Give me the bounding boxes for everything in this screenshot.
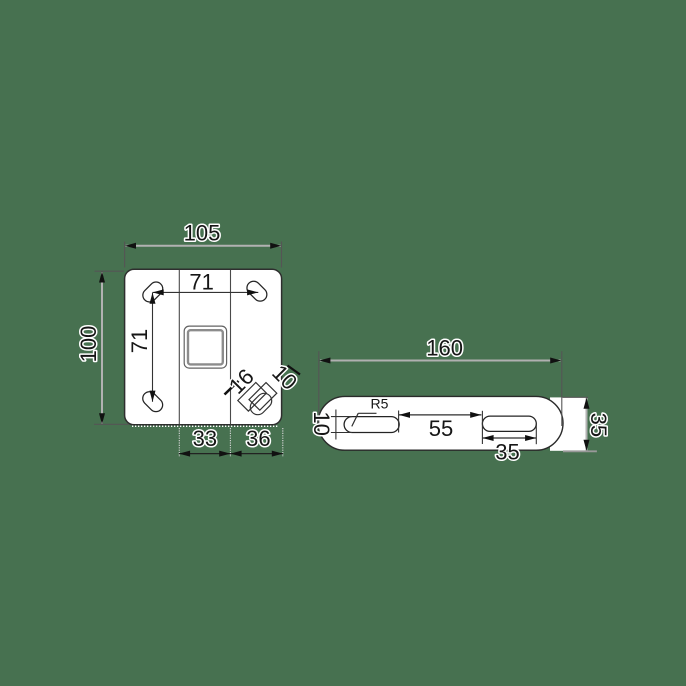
svg-text:105: 105 <box>184 221 221 246</box>
svg-text:R5: R5 <box>371 395 389 411</box>
svg-text:71: 71 <box>189 270 213 295</box>
svg-text:35: 35 <box>495 440 519 465</box>
svg-text:36: 36 <box>246 426 270 451</box>
svg-text:71: 71 <box>127 329 152 353</box>
svg-text:33: 33 <box>193 426 217 451</box>
svg-text:100: 100 <box>76 326 101 363</box>
svg-text:160: 160 <box>426 336 463 361</box>
svg-text:35: 35 <box>586 413 611 437</box>
svg-text:55: 55 <box>429 416 453 441</box>
svg-text:10: 10 <box>309 411 334 435</box>
